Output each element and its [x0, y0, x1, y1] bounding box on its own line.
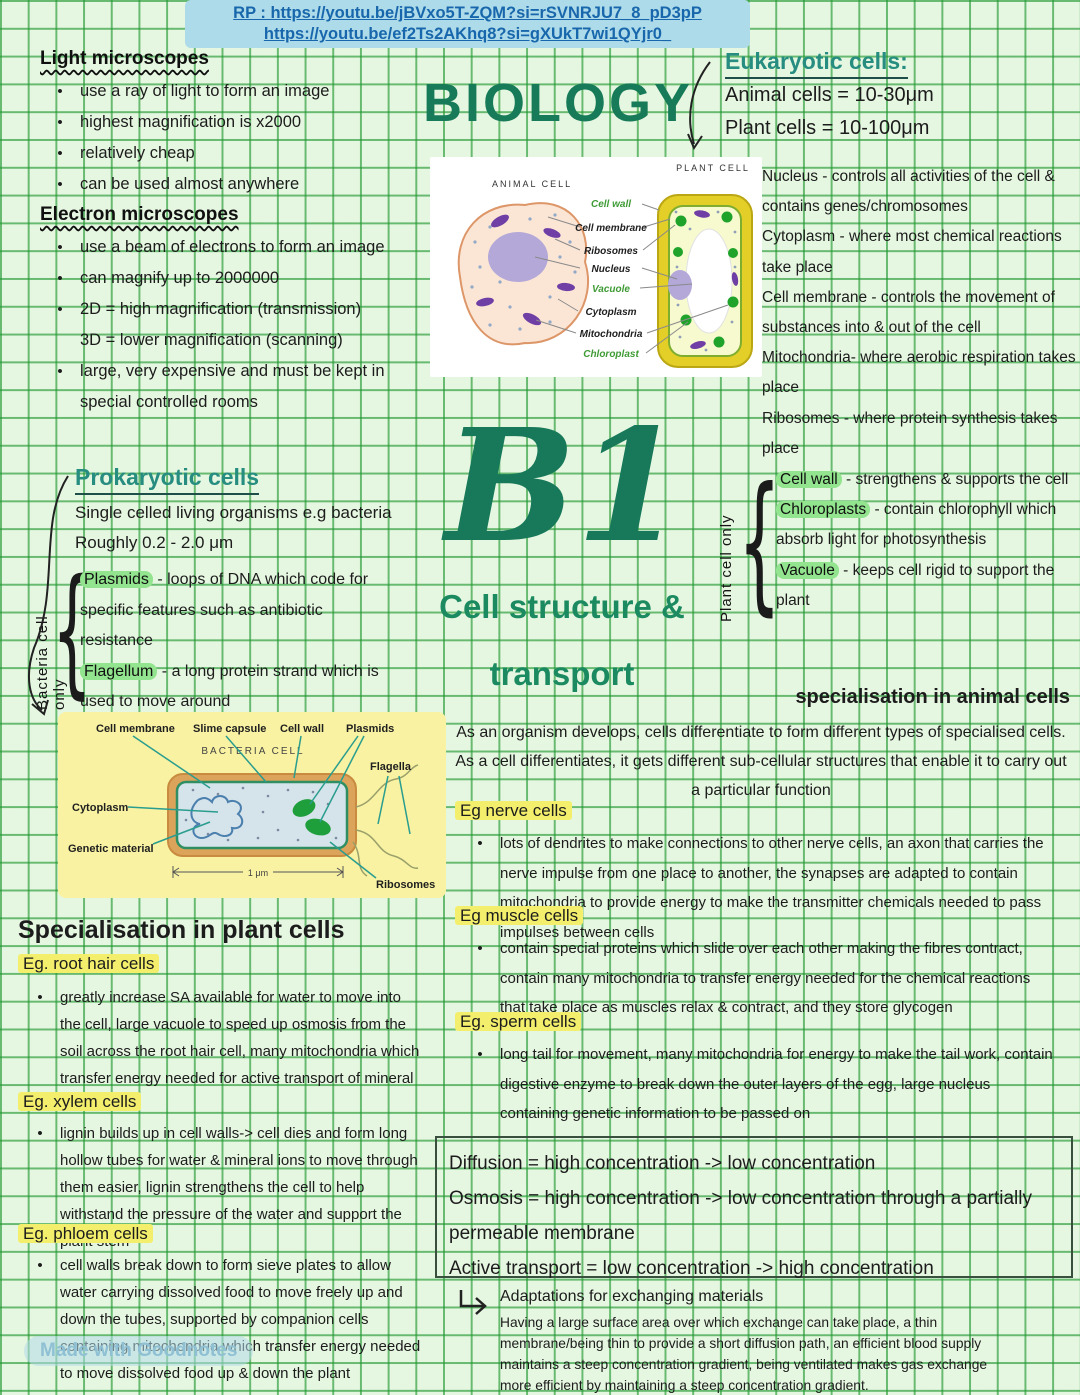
label-cytoplasm: Cytoplasm [72, 802, 128, 814]
list-item: •highest magnification is x2000 [40, 107, 445, 138]
osmosis-definition: Osmosis = high concentration -> low conc… [449, 1181, 1059, 1251]
sperm-cells-title: Eg. sperm cells [455, 1012, 581, 1032]
bullet-icon: • [40, 232, 80, 263]
animal-plant-cell-diagram: ANIMAL CELL PLANT CELL [430, 157, 762, 377]
plant-only-brace: { [738, 468, 781, 618]
bacteria-cell-title: BACTERIA CELL [201, 746, 304, 757]
list-item: •use a beam of electrons to form an imag… [40, 232, 430, 263]
goodnotes-watermark: Made with Goodnotes [24, 1336, 253, 1366]
animal-cell-title: ANIMAL CELL [492, 179, 572, 189]
label-slime-capsule: Slime capsule [193, 723, 266, 735]
list-item: •large, very expensive and must be kept … [40, 356, 430, 418]
eukaryotic-plant-size: Plant cells = 10-100μm [725, 117, 929, 140]
bacteria-only-item: Plasmids - loops of DNA which code for s… [80, 565, 390, 657]
label-cell-membrane: Cell membrane [96, 723, 175, 735]
plant-cell-title: PLANT CELL [676, 163, 750, 173]
label-cytoplasm: Cytoplasm [585, 307, 636, 318]
microscopes-section: Light microscopes •use a ray of light to… [40, 48, 445, 418]
organelle-item: Cytoplasm - where most chemical reaction… [762, 222, 1080, 282]
bullet-icon: • [460, 829, 500, 859]
unit-subtitle-line1: Cell structure & [422, 588, 702, 626]
bullet-icon: • [20, 984, 60, 1011]
eukaryotic-animal-size: Animal cells = 10-30μm [725, 84, 934, 107]
organelle-item: Cell membrane - controls the movement of… [762, 283, 1080, 343]
page-title: BIOLOGY [423, 72, 693, 134]
nerve-cells-item: •lots of dendrites to make connections t… [460, 829, 1060, 947]
organelle-item: Mitochondria- where aerobic respiration … [762, 343, 1080, 403]
transport-definitions-box: Diffusion = high concentration -> low co… [435, 1136, 1073, 1278]
label-cell-membrane: Cell membrane [575, 223, 647, 234]
bullet-icon: • [40, 263, 80, 294]
muscle-cells-item: •contain special proteins which slide ov… [460, 934, 1060, 1023]
organelle-item: Nucleus - controls all activities of the… [762, 162, 1080, 222]
label-cell-wall: Cell wall [280, 723, 324, 735]
organelle-item: Ribosomes - where protein synthesis take… [762, 404, 1080, 464]
active-transport-definition: Active transport = low concentration -> … [449, 1251, 1059, 1286]
bullet-icon: • [40, 356, 80, 387]
cell-diagram-graphic: ANIMAL CELL PLANT CELL [430, 157, 762, 377]
list-item: •use a ray of light to form an image [40, 76, 445, 107]
bullet-icon: • [40, 294, 80, 325]
plant-cell-only-label: Plant cell only [718, 492, 735, 622]
video-link-banner: RP : https://youtu.be/jBVxo5T-ZQM?si=rSV… [185, 0, 750, 48]
arrow-down-icon [672, 58, 718, 158]
bacteria-cell-diagram: BACTERIA CELL [58, 712, 446, 898]
video-link-2[interactable]: https://youtu.be/ef2Ts2AKhq8?si=gXUkT7wi… [195, 24, 740, 45]
bullet-icon: • [40, 76, 80, 107]
root-hair-cells-title: Eg. root hair cells [18, 954, 159, 974]
prokaryotic-line1: Single celled living organisms e.g bacte… [75, 503, 392, 523]
notes-page: RP : https://youtu.be/jBVxo5T-ZQM?si=rSV… [0, 0, 1080, 1395]
eukaryotic-heading: Eukaryotic cells: [725, 48, 908, 79]
bullet-icon: • [40, 107, 80, 138]
phloem-cells-title: Eg. phloem cells [18, 1224, 153, 1244]
bullet-icon: • [20, 1120, 60, 1147]
bacteria-only-item: Flagellum - a long protein strand which … [80, 657, 390, 718]
label-genetic-material: Genetic material [68, 843, 154, 855]
label-ribosomes: Ribosomes [376, 879, 435, 891]
adaptations-body: Having a large surface area over which e… [500, 1312, 1020, 1395]
curve-arrow-to-diagram-icon [8, 468, 78, 720]
bullet-icon: • [40, 138, 80, 169]
label-flagella: Flagella [370, 761, 412, 773]
label-nucleus: Nucleus [592, 264, 631, 275]
label-mitochondria: Mitochondria [580, 329, 643, 340]
xylem-cells-title: Eg. xylem cells [18, 1092, 141, 1112]
bacteria-diagram-graphic: BACTERIA CELL [58, 712, 446, 898]
bacteria-flagella [353, 765, 418, 876]
plant-only-list: Cell wall - strengthens & supports the c… [776, 465, 1078, 616]
muscle-cells-title: Eg muscle cells [455, 906, 583, 926]
label-plasmids: Plasmids [346, 723, 394, 735]
light-microscopes-heading: Light microscopes [40, 48, 445, 70]
scale-label: 1 μm [248, 868, 268, 878]
bullet-icon: • [460, 1040, 500, 1070]
prokaryotic-heading: Prokaryotic cells [75, 464, 259, 495]
electron-microscopes-heading: Electron microscopes [40, 204, 445, 226]
sperm-cells-item: •long tail for movement, many mitochondr… [460, 1040, 1060, 1129]
animal-nucleus [488, 232, 548, 282]
list-item: •can magnify up to 2000000 [40, 263, 430, 294]
bullet-icon: • [460, 934, 500, 964]
list-item: 3D = lower magnification (scanning) [40, 325, 430, 356]
bullet-icon: • [20, 1252, 60, 1279]
label-chloroplast: Chloroplast [583, 349, 639, 360]
label-ribosomes: Ribosomes [584, 246, 638, 257]
nerve-cells-title: Eg nerve cells [455, 801, 572, 821]
plant-only-item: Cell wall - strengthens & supports the c… [776, 465, 1078, 495]
animal-spec-heading: specialisation in animal cells [790, 686, 1070, 709]
organelle-list: Nucleus - controls all activities of the… [762, 162, 1080, 464]
plant-only-item: Chloroplasts - contain chlorophyll which… [776, 495, 1078, 555]
list-item: •can be used almost anywhere [40, 169, 445, 200]
plant-spec-heading: Specialisation in plant cells [18, 916, 345, 945]
prokaryotic-line2: Roughly 0.2 - 2.0 μm [75, 533, 233, 553]
bullet-icon: • [40, 169, 80, 200]
label-vacuole: Vacuole [592, 284, 630, 295]
diffusion-definition: Diffusion = high concentration -> low co… [449, 1146, 1059, 1181]
list-item: •relatively cheap [40, 138, 445, 169]
animal-spec-intro: As an organism develops, cells different… [450, 718, 1072, 805]
unit-subtitle-line2: transport [422, 655, 702, 693]
plant-only-item: Vacuole - keeps cell rigid to support th… [776, 556, 1078, 616]
bacteria-only-list: Plasmids - loops of DNA which code for s… [80, 565, 390, 718]
adaptations-heading: Adaptations for exchanging materials [500, 1288, 763, 1306]
label-cell-wall: Cell wall [591, 199, 631, 210]
phloem-cells-item: •cell walls break down to form sieve pla… [20, 1252, 428, 1387]
return-arrow-icon [455, 1288, 491, 1318]
list-item: •2D = high magnification (transmission) [40, 294, 430, 325]
unit-code-title: B1 [445, 408, 684, 563]
video-link-1[interactable]: RP : https://youtu.be/jBVxo5T-ZQM?si=rSV… [195, 3, 740, 24]
